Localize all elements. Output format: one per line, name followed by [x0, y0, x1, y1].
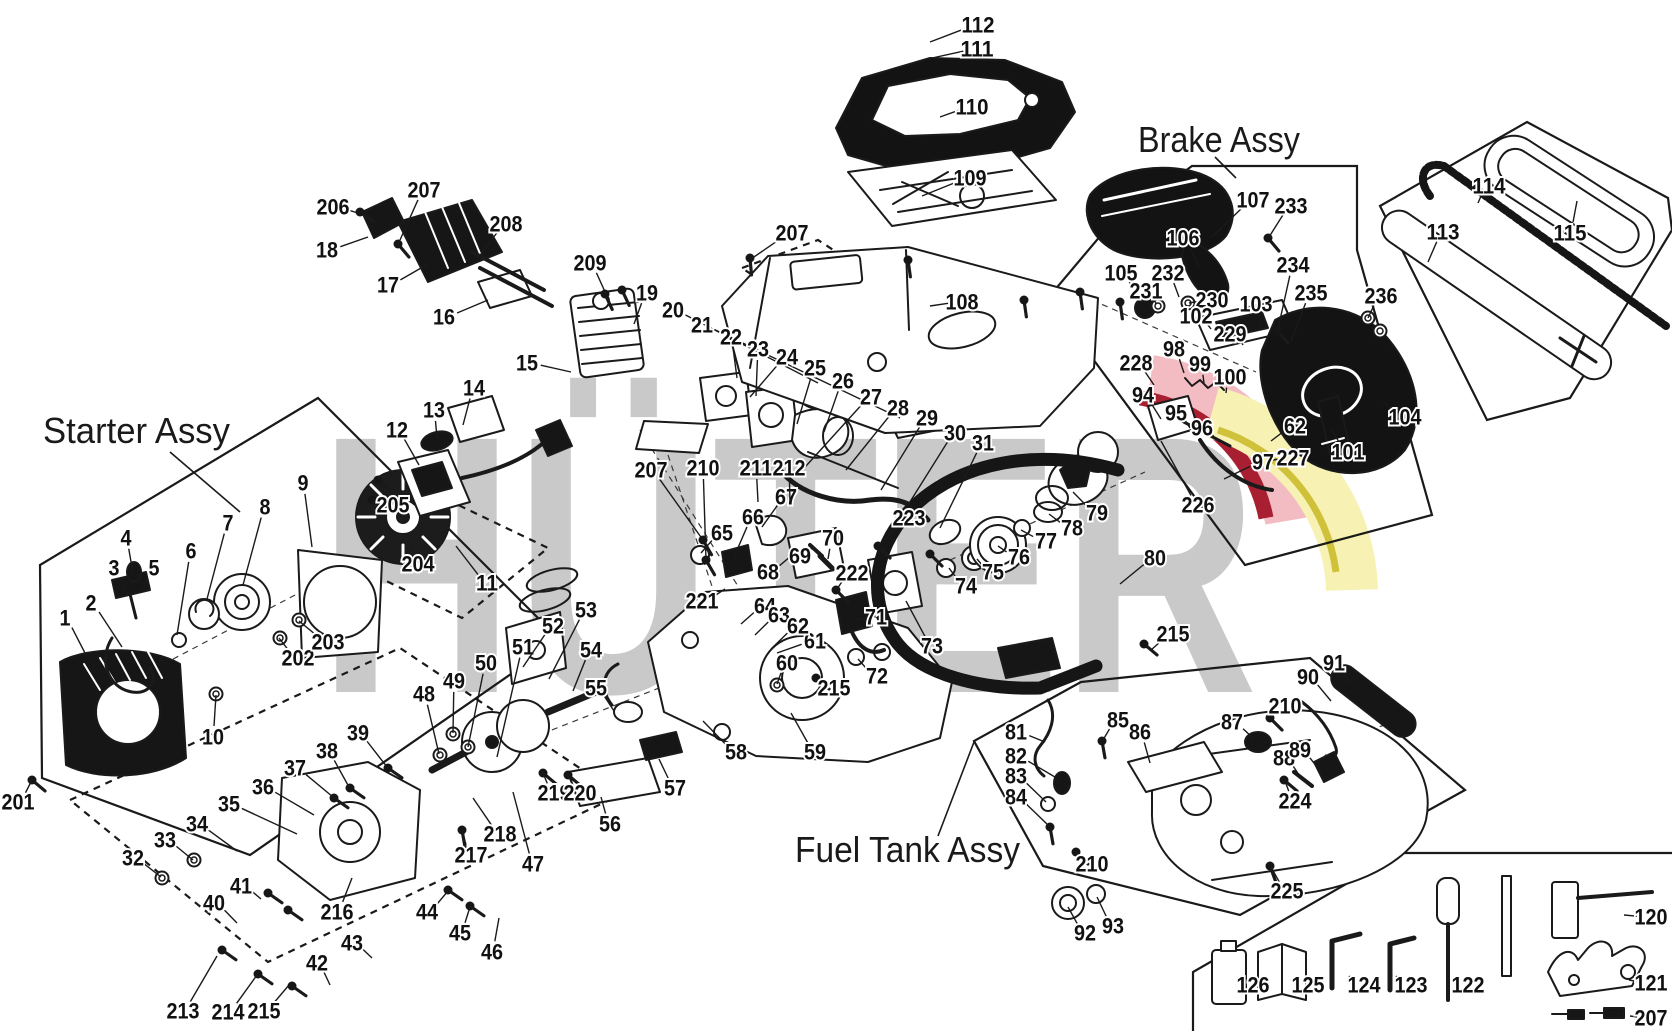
callout-208: 208: [490, 212, 523, 237]
callout-36: 36: [252, 775, 274, 800]
callout-214: 214: [212, 1000, 246, 1025]
leader-line: [253, 892, 261, 899]
callout-22: 22: [720, 325, 742, 350]
callout-38: 38: [316, 739, 338, 764]
screw-head-icon: [218, 946, 227, 955]
callout-13: 13: [423, 398, 445, 423]
callout-207: 207: [1635, 1006, 1668, 1031]
callout-96: 96: [1191, 416, 1213, 441]
callout-125: 125: [1292, 973, 1325, 998]
callout-74: 74: [955, 574, 978, 599]
screw-head-icon: [926, 550, 935, 559]
callout-114: 114: [1473, 174, 1507, 199]
assembly-title-fuel-tank-assy: Fuel Tank Assy: [795, 829, 1020, 870]
screw-head-icon: [1280, 776, 1289, 785]
callout-59: 59: [804, 740, 826, 765]
callout-62: 62: [787, 614, 809, 639]
leader-line: [340, 237, 368, 247]
screw-head-icon: [1273, 326, 1282, 335]
callout-221: 221: [686, 589, 719, 614]
callout-31: 31: [972, 431, 994, 456]
callout-48: 48: [413, 682, 435, 707]
callout-104: 104: [1389, 405, 1423, 430]
part-shape-179: [1568, 1010, 1584, 1019]
assembly-title-brake-assy: Brake Assy: [1138, 119, 1300, 160]
leader-line: [363, 950, 372, 958]
callout-50: 50: [475, 651, 497, 676]
part-shape-75: [172, 633, 186, 647]
callout-120: 120: [1635, 905, 1668, 930]
callout-215: 215: [818, 676, 851, 701]
callout-126: 126: [1237, 973, 1270, 998]
callout-226: 226: [1182, 493, 1215, 518]
callout-202: 202: [282, 646, 315, 671]
leader-line: [789, 479, 790, 502]
callout-203: 203: [312, 630, 345, 655]
callout-109: 109: [954, 166, 987, 191]
callout-207: 207: [776, 221, 809, 246]
screw-head-icon: [368, 496, 377, 505]
callout-225: 225: [1271, 879, 1304, 904]
callout-34: 34: [186, 812, 209, 837]
callout-8: 8: [260, 495, 271, 520]
part-shape-180: [1604, 1008, 1624, 1018]
callout-222: 222: [836, 561, 869, 586]
callout-121: 121: [1635, 971, 1668, 996]
callout-233: 233: [1275, 194, 1308, 219]
screw-head-icon: [1266, 862, 1275, 871]
callout-30: 30: [944, 421, 966, 446]
callout-56: 56: [599, 812, 621, 837]
callout-209: 209: [574, 251, 607, 276]
callout-97: 97: [1252, 450, 1274, 475]
callout-207: 207: [408, 178, 441, 203]
screw-head-icon: [1076, 288, 1085, 297]
callout-80: 80: [1144, 546, 1166, 571]
leader-line: [177, 562, 189, 635]
callout-20: 20: [662, 298, 684, 323]
callout-110: 110: [956, 95, 989, 120]
callout-213: 213: [167, 999, 200, 1024]
callout-84: 84: [1005, 785, 1028, 810]
callout-98: 98: [1163, 337, 1185, 362]
leader-line: [495, 918, 499, 941]
leader-line: [72, 628, 86, 655]
callout-207: 207: [635, 458, 668, 483]
part-shape-162: [1423, 165, 1666, 326]
callout-28: 28: [887, 396, 909, 421]
callout-19: 19: [636, 281, 658, 306]
callout-90: 90: [1297, 665, 1319, 690]
part-shape-136: [1052, 887, 1084, 919]
callout-24: 24: [776, 345, 799, 370]
callout-1: 1: [60, 606, 71, 631]
screw-head-icon: [346, 784, 355, 793]
leader-line: [190, 956, 217, 1002]
callout-75: 75: [982, 560, 1004, 585]
callout-215: 215: [248, 999, 281, 1024]
part-shape-174: [1552, 882, 1578, 938]
callout-78: 78: [1061, 516, 1083, 541]
callout-35: 35: [218, 792, 240, 817]
callout-3: 3: [109, 556, 120, 581]
screw-head-icon: [1140, 640, 1149, 649]
callout-81: 81: [1005, 720, 1027, 745]
part-shape-31: [1025, 93, 1039, 107]
callout-16: 16: [433, 305, 455, 330]
callout-66: 66: [742, 505, 764, 530]
callout-45: 45: [449, 921, 471, 946]
screw-head-icon: [374, 476, 383, 485]
callout-17: 17: [377, 273, 399, 298]
nut-icon: [434, 749, 447, 762]
leader-line: [1318, 685, 1331, 701]
callout-14: 14: [463, 376, 486, 401]
callout-42: 42: [306, 951, 328, 976]
callout-205: 205: [377, 493, 410, 518]
part-shape-144: [1087, 168, 1233, 259]
part-shape-15: [636, 421, 708, 453]
callout-4: 4: [121, 526, 133, 551]
part-shape-134: [1054, 772, 1070, 794]
callout-229: 229: [1214, 322, 1247, 347]
leader-line: [453, 692, 454, 733]
callout-113: 113: [1427, 220, 1460, 245]
callout-57: 57: [664, 776, 686, 801]
callout-52: 52: [542, 614, 564, 639]
leader-line: [225, 910, 237, 923]
callout-86: 86: [1129, 720, 1151, 745]
callout-65: 65: [711, 521, 733, 546]
callout-201: 201: [2, 790, 35, 815]
callout-115: 115: [1554, 221, 1587, 246]
callout-79: 79: [1086, 501, 1108, 526]
callout-25: 25: [804, 356, 826, 381]
callout-210: 210: [1269, 694, 1302, 719]
callout-234: 234: [1277, 253, 1311, 278]
callout-37: 37: [284, 756, 306, 781]
callout-91: 91: [1323, 651, 1345, 676]
callout-210: 210: [687, 456, 720, 481]
callout-215: 215: [1157, 622, 1190, 647]
assembly-title-leader-starter-assy: [170, 452, 240, 512]
callout-29: 29: [916, 406, 938, 431]
callout-89: 89: [1289, 738, 1311, 763]
screw-head-icon: [264, 889, 273, 898]
callout-210: 210: [1076, 852, 1109, 877]
callout-68: 68: [757, 560, 779, 585]
callout-124: 124: [1348, 973, 1382, 998]
screw-head-icon: [284, 906, 293, 915]
part-shape-73: [189, 599, 219, 629]
callout-228: 228: [1120, 351, 1153, 376]
leader-line: [1027, 783, 1046, 802]
leader-line: [305, 494, 312, 547]
leader-line: [596, 273, 606, 294]
callout-11: 11: [476, 571, 498, 596]
callout-10: 10: [202, 725, 224, 750]
assembly-title-starter-assy: Starter Assy: [43, 410, 230, 451]
callout-60: 60: [776, 651, 798, 676]
part-shape-86: [278, 762, 420, 900]
callout-108: 108: [946, 290, 979, 315]
callout-123: 123: [1395, 973, 1428, 998]
callout-211: 211: [740, 456, 773, 481]
callout-87: 87: [1221, 710, 1243, 735]
part-shape-171: [1437, 878, 1459, 924]
callout-26: 26: [832, 369, 854, 394]
callout-106: 106: [1167, 226, 1200, 251]
leader-line: [176, 846, 193, 860]
callout-58: 58: [725, 740, 747, 765]
leader-line: [1573, 201, 1577, 222]
part-shape-173: [1502, 876, 1511, 976]
leader-line: [457, 300, 488, 313]
callout-72: 72: [866, 664, 888, 689]
nut-icon: [274, 632, 287, 645]
callout-220: 220: [564, 781, 597, 806]
leader-line: [437, 891, 448, 904]
callout-70: 70: [822, 526, 844, 551]
callout-100: 100: [1214, 365, 1247, 390]
callout-235: 235: [1295, 281, 1328, 306]
callout-46: 46: [481, 940, 503, 965]
callout-39: 39: [347, 721, 369, 746]
part-shape-138: [1087, 885, 1105, 903]
callout-67: 67: [775, 485, 797, 510]
callout-33: 33: [154, 828, 176, 853]
nut-icon: [188, 854, 201, 867]
part-shape-176: [1548, 942, 1645, 996]
callout-9: 9: [298, 471, 309, 496]
callout-217: 217: [455, 843, 488, 868]
callout-69: 69: [789, 544, 811, 569]
callout-102: 102: [1180, 304, 1213, 329]
callout-21: 21: [691, 313, 713, 338]
callout-23: 23: [747, 337, 769, 362]
part-shape-166: [1221, 941, 1236, 951]
callout-101: 101: [1332, 440, 1365, 465]
callout-2: 2: [86, 591, 97, 616]
callout-94: 94: [1132, 383, 1155, 408]
callout-49: 49: [443, 669, 465, 694]
callout-122: 122: [1452, 973, 1485, 998]
callout-32: 32: [122, 846, 144, 871]
part-shape-78: [130, 594, 136, 618]
callout-93: 93: [1102, 914, 1124, 939]
callout-71: 71: [865, 605, 887, 630]
screw-head-icon: [394, 240, 403, 249]
part-shape-175: [1578, 892, 1652, 898]
callout-112: 112: [962, 13, 995, 38]
callout-216: 216: [321, 900, 354, 925]
callout-7: 7: [223, 511, 234, 536]
callout-55: 55: [585, 676, 607, 701]
callout-107: 107: [1237, 188, 1270, 213]
diagram-canvas: HÜTER20620718172081620915192021222324252…: [0, 0, 1672, 1031]
screw-head-icon: [1020, 296, 1029, 305]
nut-icon: [1374, 325, 1387, 338]
screw-head-icon: [1098, 737, 1107, 746]
callout-212: 212: [773, 456, 806, 481]
callout-224: 224: [1279, 789, 1313, 814]
callout-62: 62: [1284, 414, 1306, 439]
part-shape-95: [486, 736, 498, 748]
callout-43: 43: [341, 931, 363, 956]
callout-76: 76: [1008, 545, 1030, 570]
assembly-title-leader-brake-assy: [1215, 157, 1236, 178]
callout-223: 223: [893, 506, 926, 531]
callout-77: 77: [1035, 529, 1057, 554]
callout-54: 54: [580, 638, 603, 663]
part-shape-70: [214, 574, 270, 630]
callout-18: 18: [316, 238, 338, 263]
callout-218: 218: [484, 822, 517, 847]
nut-icon: [771, 679, 784, 692]
callout-85: 85: [1107, 708, 1129, 733]
callout-227: 227: [1277, 446, 1310, 471]
callout-111: 111: [961, 37, 994, 62]
callout-44: 44: [416, 900, 439, 925]
callout-12: 12: [386, 418, 408, 443]
screw-head-icon: [904, 256, 913, 265]
callout-47: 47: [522, 852, 544, 877]
callout-6: 6: [186, 539, 197, 564]
callout-15: 15: [516, 351, 538, 376]
part-shape-79: [127, 562, 141, 582]
callout-27: 27: [860, 385, 882, 410]
callout-236: 236: [1365, 284, 1398, 309]
callout-232: 232: [1152, 261, 1185, 286]
exploded-diagram-svg: HÜTER20620718172081620915192021222324252…: [0, 0, 1672, 1031]
screw-head-icon: [444, 886, 453, 895]
callout-204: 204: [402, 552, 436, 577]
callout-206: 206: [317, 195, 350, 220]
part-shape-98: [614, 702, 642, 722]
callout-73: 73: [921, 634, 943, 659]
screw-head-icon: [1116, 298, 1125, 307]
callout-99: 99: [1189, 352, 1211, 377]
callout-40: 40: [203, 891, 225, 916]
leader-line: [145, 864, 161, 877]
callout-41: 41: [230, 874, 252, 899]
callout-92: 92: [1074, 921, 1096, 946]
screw-head-icon: [618, 286, 627, 295]
callout-53: 53: [575, 598, 597, 623]
callout-95: 95: [1165, 401, 1187, 426]
callout-103: 103: [1240, 292, 1273, 317]
callout-5: 5: [149, 556, 160, 581]
